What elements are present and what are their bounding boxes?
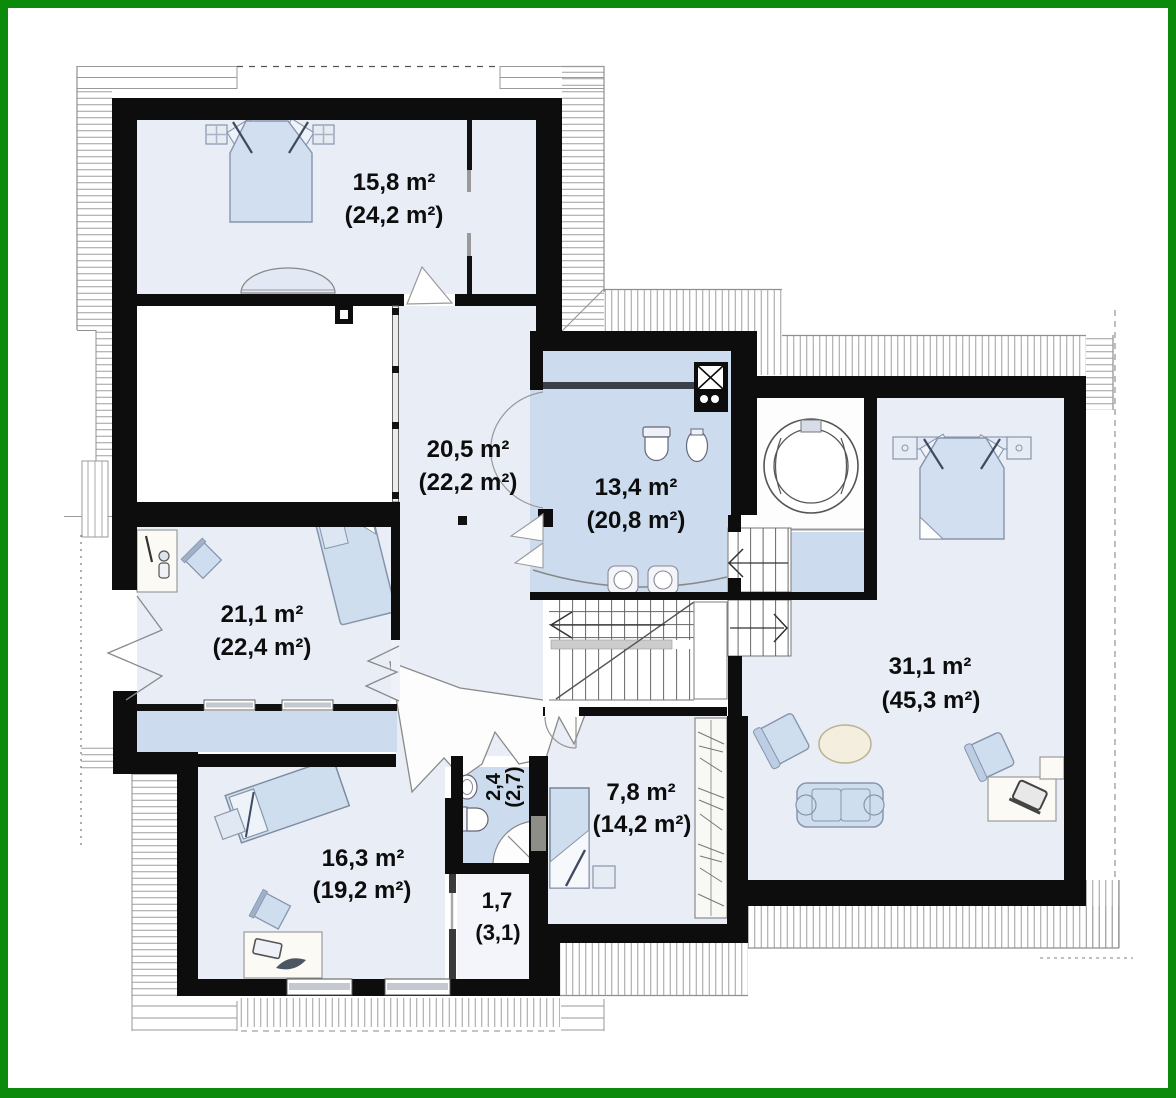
svg-text:2,4: 2,4 [483,772,505,801]
svg-text:1,7: 1,7 [482,888,513,913]
svg-text:(22,4 m²): (22,4 m²) [213,634,312,661]
svg-text:15,8 m²: 15,8 m² [353,169,436,196]
svg-text:7,8 m²: 7,8 m² [606,779,675,806]
svg-text:(19,2 m²): (19,2 m²) [313,877,412,904]
svg-text:20,5 m²: 20,5 m² [427,436,510,463]
svg-text:(45,3 m²): (45,3 m²) [882,687,981,714]
svg-text:(3,1): (3,1) [475,920,520,945]
svg-text:13,4 m²: 13,4 m² [595,474,678,501]
svg-text:(14,2 m²): (14,2 m²) [593,811,692,838]
svg-text:(2,7): (2,7) [503,766,525,807]
svg-text:(20,8 m²): (20,8 m²) [587,507,686,534]
svg-text:16,3 m²: 16,3 m² [322,845,405,872]
svg-text:21,1 m²: 21,1 m² [221,601,304,628]
svg-text:31,1 m²: 31,1 m² [889,653,972,680]
svg-text:(22,2 m²): (22,2 m²) [419,469,518,496]
svg-text:(24,2 m²): (24,2 m²) [345,202,444,229]
